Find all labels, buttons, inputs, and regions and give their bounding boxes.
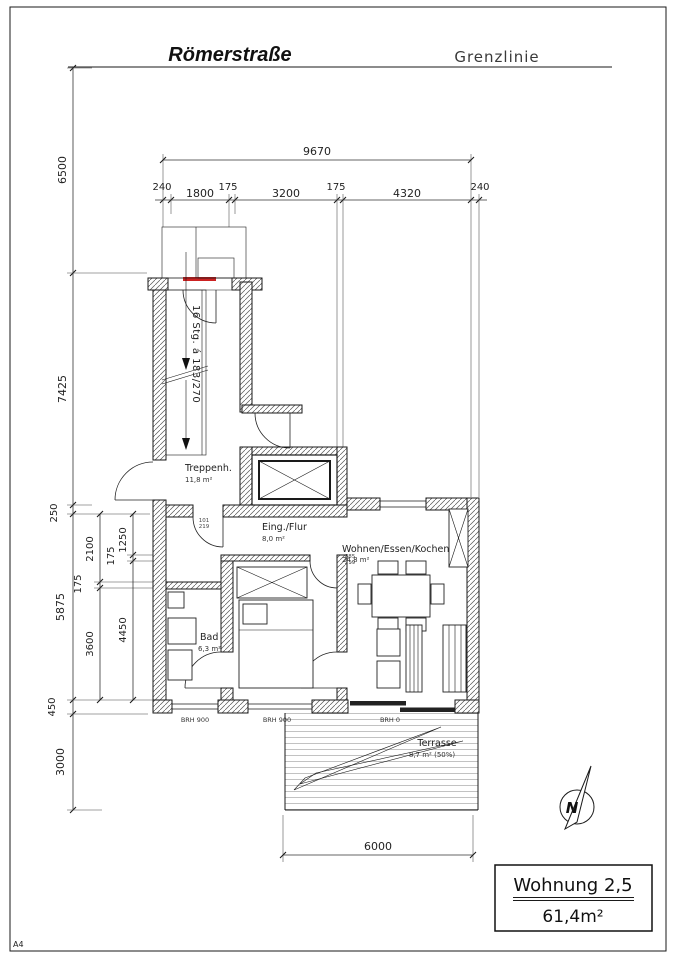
header: Römerstraße Grenzlinie — [68, 44, 612, 67]
chair — [431, 584, 444, 604]
dim-label: 3200 — [272, 187, 300, 200]
bed — [239, 600, 313, 688]
dim-label: 175 — [326, 182, 345, 193]
wall-segment — [223, 505, 347, 517]
window-bad — [172, 700, 218, 713]
wall-segment — [242, 405, 302, 413]
door-swing-schlafen — [310, 561, 337, 588]
sliding-terrace-door — [350, 701, 455, 712]
wall-segment — [166, 505, 193, 517]
dim-label: 7425 — [56, 375, 69, 403]
window-schlafen — [248, 700, 312, 713]
compass-needle-icon — [565, 766, 591, 829]
wall-unit — [377, 625, 466, 692]
sill-height-label: BRH 900 — [181, 716, 209, 724]
stairwell: 16 Stg. á 183/270 Treppenh. 11,8 m² — [162, 227, 246, 484]
dim-label: 3000 — [54, 748, 67, 776]
dining-set — [358, 561, 444, 631]
dim-label: 240 — [152, 182, 171, 193]
room-name: Bad — [200, 632, 218, 643]
chair — [358, 584, 371, 604]
wall-segment — [455, 700, 479, 713]
dim-label: 2100 — [85, 536, 96, 561]
title-block: Wohnung 2,5 61,4m² — [495, 865, 652, 931]
dim-label: 1250 — [118, 527, 129, 552]
dim-label: 450 — [47, 697, 58, 716]
stair-arrow-icon — [182, 438, 190, 450]
bathroom-fixtures — [168, 592, 196, 680]
north-arrow: N — [560, 766, 594, 829]
floor-plan-sheet: A4 Römerstraße Grenzlinie 9670 — [0, 0, 675, 960]
wall-segment — [337, 555, 347, 652]
wall-segment — [221, 555, 233, 652]
wall-segment — [312, 700, 348, 713]
apartment-area: 61,4m² — [542, 907, 603, 927]
room-area: 8,7 m² (50%) — [409, 751, 455, 759]
wall-segment — [337, 688, 347, 700]
dim-label: 5875 — [54, 593, 67, 621]
sill-height-label: BRH 0 — [380, 716, 400, 724]
compass-label: N — [566, 799, 579, 817]
stair-arrow-icon — [182, 358, 190, 370]
boundary-label: Grenzlinie — [454, 48, 539, 66]
chair — [406, 561, 426, 574]
terrace-decking — [285, 713, 478, 810]
door-swing-stair-exterior — [115, 462, 153, 500]
dim-label: 240 — [470, 182, 489, 193]
sill-height-label: BRH 900 — [263, 716, 291, 724]
room-area: 11,8 m² — [185, 476, 213, 484]
toilet — [168, 650, 192, 680]
dim-label: 175 — [218, 182, 237, 193]
dim-label: 6000 — [364, 840, 392, 853]
stair-head-door-leaf — [198, 258, 234, 278]
window — [380, 498, 426, 510]
elevator-shaft — [252, 455, 337, 505]
wall-segment — [221, 555, 310, 561]
dim-label: 3600 — [85, 631, 96, 656]
door-size: 219 — [199, 524, 210, 530]
room-name: Terrasse — [416, 738, 456, 749]
dining-table — [372, 575, 430, 617]
shelf — [168, 592, 184, 608]
room-name: Eing./Flur — [262, 522, 307, 533]
dim-label: 1800 — [186, 187, 214, 200]
wall-segment — [153, 500, 166, 713]
top-dimension-chain: 9670 240 1800 175 3200 175 4320 240 — [152, 145, 489, 497]
sink — [168, 618, 196, 644]
street-name: Römerstraße — [168, 44, 291, 66]
room-name: Treppenh. — [184, 463, 232, 474]
room-area: 6,3 m² — [198, 645, 221, 653]
dim-label: 9670 — [303, 145, 331, 158]
dim-label: 4320 — [393, 187, 421, 200]
stair-head-outline — [162, 227, 246, 278]
dim-label: 250 — [49, 503, 60, 522]
wardrobe — [237, 567, 307, 598]
dim-label: 175 — [106, 546, 117, 565]
wall-segment — [347, 498, 380, 510]
wall-segment — [166, 582, 221, 589]
dim-label: 4450 — [118, 617, 129, 642]
entrance-door-marker — [183, 277, 216, 281]
left-dimension-chain: 6500 7425 250 5875 450 3000 2100 175 360… — [47, 65, 160, 813]
wall-segment — [467, 498, 479, 713]
chair — [378, 561, 398, 574]
apartment-title: Wohnung 2,5 — [513, 875, 632, 896]
wall-segment — [148, 278, 168, 290]
wall-segment — [240, 282, 252, 412]
floor-plan-drawing: A4 Römerstraße Grenzlinie 9670 — [0, 0, 675, 960]
sheet-format-label: A4 — [13, 940, 24, 949]
bottom-dimension: 6000 — [280, 815, 476, 862]
dim-label: 175 — [73, 574, 84, 593]
wall-segment — [153, 700, 172, 713]
kitchen-cabinet — [449, 509, 468, 567]
stair-flight-label: 16 Stg. á 183/270 — [190, 305, 202, 403]
furniture — [168, 509, 468, 692]
wall-segment — [221, 688, 233, 700]
terrace: Terrasse 8,7 m² (50%) — [285, 713, 478, 810]
wall-segment — [218, 700, 248, 713]
wall-segment — [240, 447, 252, 512]
room-name: Wohnen/Essen/Kochen — [342, 544, 449, 555]
room-area: 24,8 m² — [342, 556, 370, 564]
door-swing-landing — [255, 413, 290, 448]
dim-label: 6500 — [56, 156, 69, 184]
room-area: 8,0 m² — [262, 535, 285, 543]
wall-segment — [153, 282, 166, 460]
extension-lines — [67, 68, 153, 810]
